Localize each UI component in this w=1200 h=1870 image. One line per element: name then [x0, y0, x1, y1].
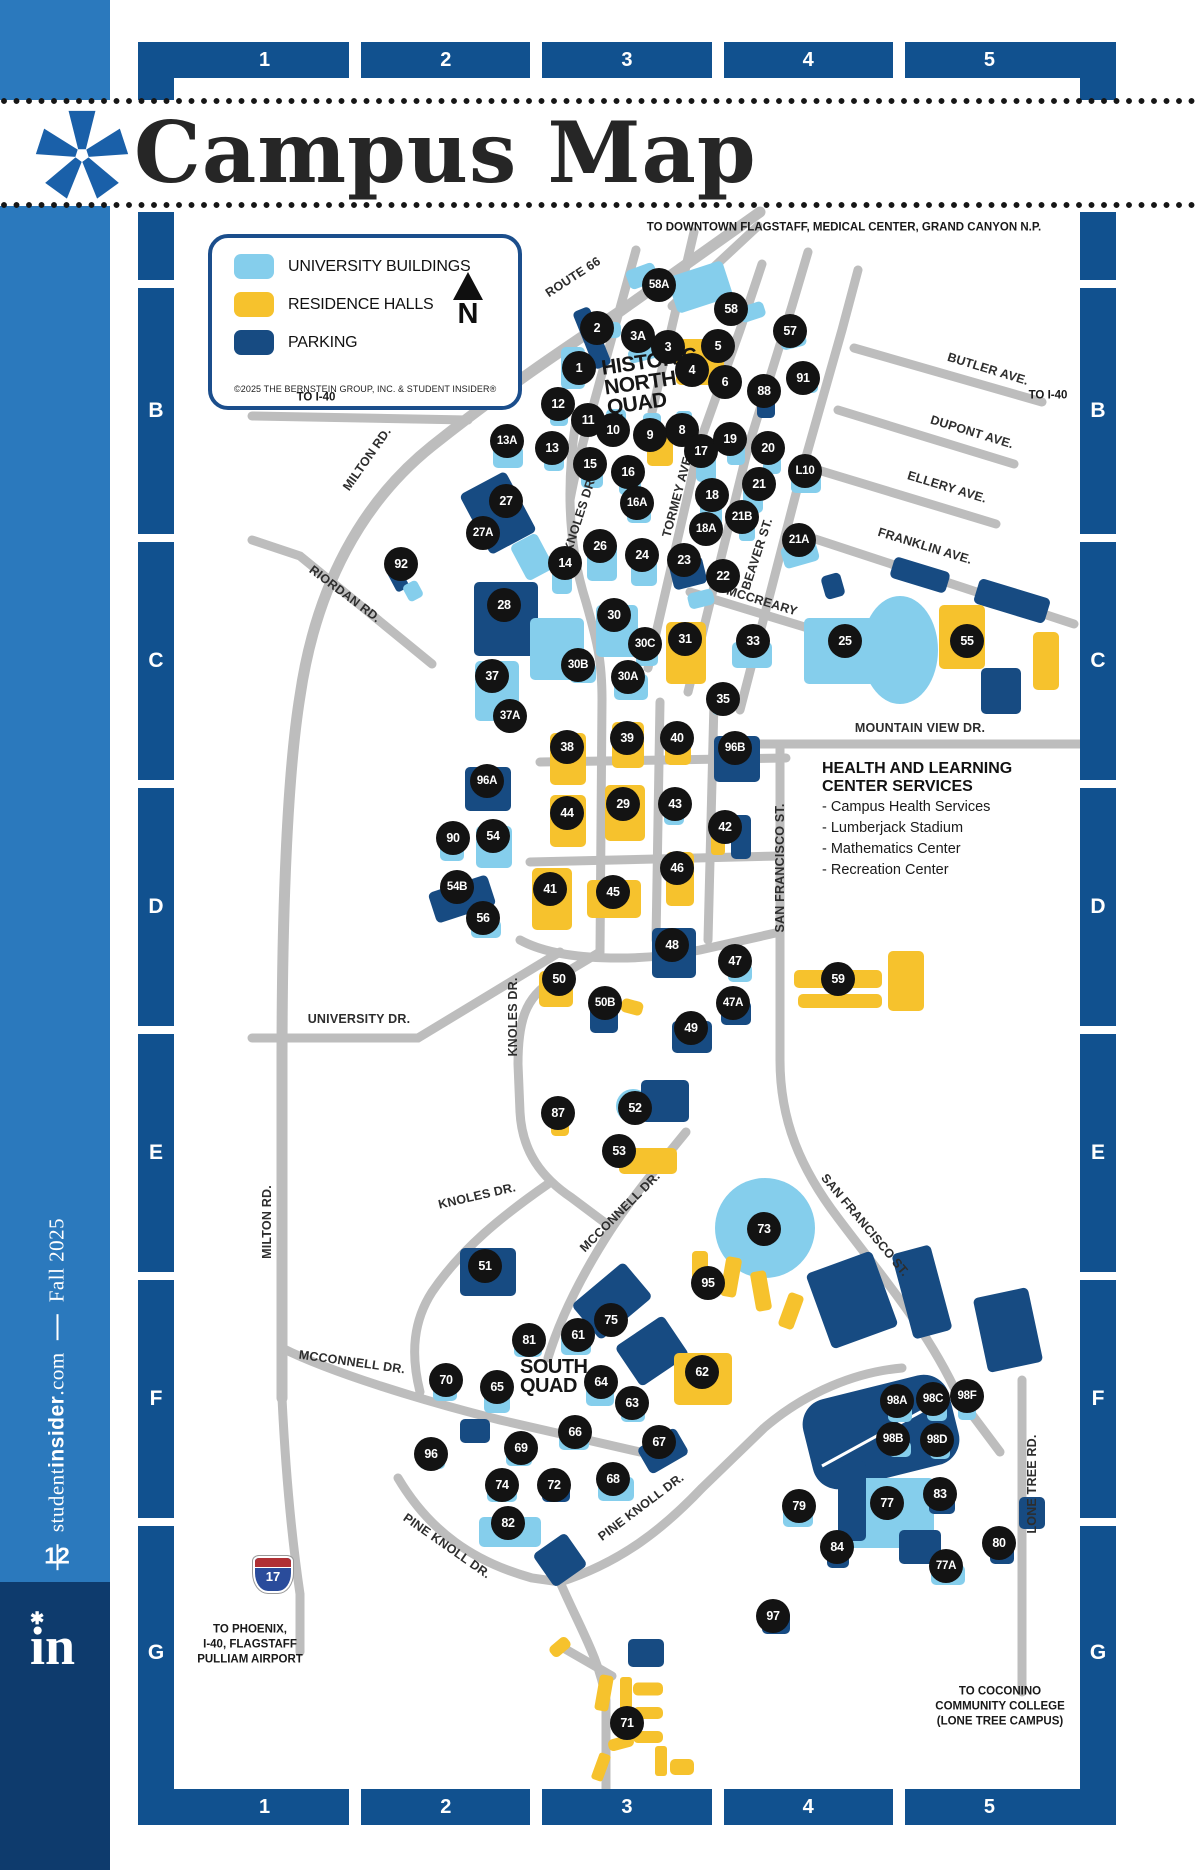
- map-marker-13: 13: [535, 431, 569, 465]
- street-label: SAN FRANCISCO ST.: [773, 803, 787, 932]
- map-marker-46: 46: [660, 851, 694, 885]
- map-marker-49: 49: [674, 1011, 708, 1045]
- grid-left-preseg: [138, 212, 174, 280]
- map-marker-50: 50: [542, 962, 576, 996]
- map-marker-15: 15: [573, 447, 607, 481]
- grid-row-label-right-G: G: [1080, 1526, 1116, 1780]
- asterisk-logo-icon: [34, 107, 130, 203]
- map-marker-74: 74: [485, 1468, 519, 1502]
- map-marker-70: 70: [429, 1363, 463, 1397]
- map-marker-69: 69: [504, 1431, 538, 1465]
- grid-row-label-left-F: F: [138, 1280, 174, 1518]
- map-marker-33: 33: [736, 624, 770, 658]
- services-item: - Recreation Center: [822, 860, 1012, 881]
- map-marker-21: 21: [742, 467, 776, 501]
- street-label: MOUNTAIN VIEW DR.: [855, 721, 985, 735]
- legend-item-label: UNIVERSITY BUILDINGS: [288, 258, 470, 276]
- map-marker-27: 27: [489, 484, 523, 518]
- map-marker-73: 73: [747, 1212, 781, 1246]
- map-marker-98C: 98C: [916, 1382, 950, 1416]
- map-marker-65: 65: [480, 1370, 514, 1404]
- map-marker-23: 23: [667, 543, 701, 577]
- grid-col-label-top-4: 4: [724, 42, 893, 78]
- map-marker-63: 63: [615, 1386, 649, 1420]
- map-marker-50B: 50B: [588, 986, 622, 1020]
- direction-note-line: TO I-40: [1029, 389, 1068, 404]
- map-marker-54: 54: [476, 819, 510, 853]
- building: [1033, 632, 1059, 690]
- building: [798, 994, 882, 1008]
- services-item: - Campus Health Services: [822, 797, 1012, 818]
- map-marker-30A: 30A: [611, 660, 645, 694]
- direction-note-line: (LONE TREE CAMPUS): [935, 1714, 1064, 1729]
- map-marker-5: 5: [701, 329, 735, 363]
- map-marker-41: 41: [533, 872, 567, 906]
- map-marker-29: 29: [606, 787, 640, 821]
- map-marker-47: 47: [718, 944, 752, 978]
- map-marker-81: 81: [512, 1323, 546, 1357]
- map-marker-25: 25: [828, 624, 862, 658]
- map-marker-14: 14: [548, 546, 582, 580]
- building: [981, 668, 1021, 714]
- legend-item-label: RESIDENCE HALLS: [288, 296, 434, 314]
- map-marker-97: 97: [756, 1599, 790, 1633]
- map-marker-90: 90: [436, 821, 470, 855]
- map-marker-2: 2: [580, 311, 614, 345]
- grid-row-label-right-E: E: [1080, 1034, 1116, 1272]
- direction-note-line: TO I-40: [297, 391, 336, 406]
- grid-row-label-left-E: E: [138, 1034, 174, 1272]
- map-marker-21B: 21B: [725, 500, 759, 534]
- grid-row-label-right-D: D: [1080, 788, 1116, 1026]
- legend-item-2: PARKING: [234, 330, 357, 355]
- legend-swatch-icon: [234, 292, 274, 317]
- map-marker-39: 39: [610, 721, 644, 755]
- map-marker-42: 42: [708, 810, 742, 844]
- map-marker-72: 72: [537, 1468, 571, 1502]
- map-marker-80: 80: [982, 1526, 1016, 1560]
- shield-number: 17: [255, 1569, 291, 1584]
- map-marker-58: 58: [714, 292, 748, 326]
- map-marker-84: 84: [820, 1530, 854, 1564]
- map-marker-92: 92: [384, 547, 418, 581]
- map-marker-98D: 98D: [920, 1423, 954, 1457]
- north-arrow-icon: [453, 272, 483, 300]
- grid-col-label-bottom-5: 5: [905, 1789, 1074, 1825]
- direction-note-2: TO I-40: [1029, 389, 1068, 404]
- map-marker-96B: 96B: [718, 731, 752, 765]
- map-graphics: [0, 0, 1200, 1870]
- map-marker-18A: 18A: [689, 512, 723, 546]
- grid-col-label-top-2: 2: [361, 42, 530, 78]
- map-marker-77A: 77A: [929, 1549, 963, 1583]
- map-marker-45: 45: [596, 875, 630, 909]
- direction-note-0: TO DOWNTOWN FLAGSTAFF, MEDICAL CENTER, G…: [647, 221, 1041, 236]
- brand-com: .com: [45, 1352, 69, 1395]
- quad-label-1: SOUTHQUAD: [520, 1358, 588, 1396]
- map-marker-11: 11: [571, 403, 605, 437]
- map-marker-77: 77: [870, 1486, 904, 1520]
- map-marker-62: 62: [685, 1355, 719, 1389]
- map-marker-9: 9: [633, 418, 667, 452]
- map-marker-37: 37: [475, 659, 509, 693]
- building: [805, 1250, 898, 1349]
- building: [633, 1683, 663, 1696]
- dotted-rule-bottom: [0, 201, 1200, 209]
- direction-note-line: TO PHOENIX,: [197, 1623, 303, 1638]
- map-marker-79: 79: [782, 1489, 816, 1523]
- campus-map-page: 1122334455BBCCDDEEFFGG Campus Map UNIVER…: [0, 0, 1200, 1870]
- map-marker-98B: 98B: [876, 1422, 910, 1456]
- grid-row-label-left-D: D: [138, 788, 174, 1026]
- shield-red-band: [255, 1558, 291, 1568]
- page-number: 12: [44, 1543, 70, 1570]
- grid-corner-bl-stub: [138, 1780, 174, 1825]
- interstate-17-shield-icon: 17: [253, 1556, 293, 1593]
- grid-corner-tl-stub: [138, 42, 174, 102]
- direction-note-line: COMMUNITY COLLEGE: [935, 1700, 1064, 1715]
- street-label: KNOLES DR.: [506, 977, 520, 1056]
- map-marker-30C: 30C: [628, 627, 662, 661]
- map-marker-16: 16: [611, 455, 645, 489]
- north-label: N: [448, 300, 488, 329]
- building: [620, 997, 645, 1016]
- north-arrow: N: [448, 272, 488, 329]
- direction-note-3: TO PHOENIX,I-40, FLAGSTAFFPULLIAM AIRPOR…: [197, 1623, 303, 1668]
- divider: [57, 1314, 59, 1340]
- street-label: LONE TREE RD.: [1025, 1434, 1039, 1533]
- legend-item-0: UNIVERSITY BUILDINGS: [234, 254, 470, 279]
- grid-col-label-bottom-1: 1: [180, 1789, 349, 1825]
- grid-corner-br-stub: [1080, 1780, 1116, 1825]
- direction-note-line: I-40, FLAGSTAFF: [197, 1638, 303, 1653]
- map-marker-98A: 98A: [880, 1384, 914, 1418]
- grid-row-label-left-C: C: [138, 542, 174, 780]
- building: [628, 1639, 664, 1667]
- map-marker-28: 28: [487, 588, 521, 622]
- map-marker-57: 57: [773, 314, 807, 348]
- map-marker-91: 91: [786, 361, 820, 395]
- issue-label: Fall 2025: [45, 1218, 69, 1302]
- map-marker-16A: 16A: [620, 486, 654, 520]
- map-marker-53: 53: [602, 1134, 636, 1168]
- brand-insider: insider: [46, 1396, 69, 1468]
- map-marker-30: 30: [597, 598, 631, 632]
- building: [670, 1759, 694, 1775]
- direction-note-1: TO I-40: [297, 391, 336, 406]
- map-marker-83: 83: [923, 1477, 957, 1511]
- building: [973, 1287, 1044, 1373]
- grid-row-label-left-G: G: [138, 1526, 174, 1780]
- map-marker-27A: 27A: [466, 516, 500, 550]
- building: [820, 572, 846, 601]
- building: [889, 556, 951, 594]
- map-marker-98F: 98F: [950, 1379, 984, 1413]
- grid-corner-tr-stub: [1080, 42, 1116, 102]
- brand-student: student: [45, 1468, 69, 1532]
- grid-col-label-top-1: 1: [180, 42, 349, 78]
- map-marker-4: 4: [675, 353, 709, 387]
- grid-row-label-right-B: B: [1080, 288, 1116, 534]
- services-item: - Lumberjack Stadium: [822, 818, 1012, 839]
- building: [655, 1746, 667, 1776]
- studentinsider-logo: ✱ in: [30, 1612, 75, 1670]
- map-marker-37A: 37A: [493, 699, 527, 733]
- map-marker-20: 20: [751, 431, 785, 465]
- map-marker-66: 66: [558, 1415, 592, 1449]
- map-marker-51: 51: [468, 1249, 502, 1283]
- building: [888, 951, 924, 1011]
- legend-swatch-icon: [234, 330, 274, 355]
- map-legend: UNIVERSITY BUILDINGSRESIDENCE HALLSPARKI…: [208, 234, 522, 410]
- sidebar-vertical-text: studentinsider.comFall 2025: [45, 1218, 70, 1582]
- map-marker-67: 67: [642, 1425, 676, 1459]
- map-marker-54B: 54B: [440, 870, 474, 904]
- street-label: MILTON RD.: [260, 1185, 274, 1259]
- grid-row-label-left-B: B: [138, 288, 174, 534]
- map-marker-59: 59: [821, 962, 855, 996]
- map-marker-68: 68: [596, 1462, 630, 1496]
- building: [777, 1291, 804, 1330]
- grid-col-label-bottom-3: 3: [542, 1789, 711, 1825]
- quad-label-line: QUAD: [520, 1377, 588, 1396]
- legend-copyright: ©2025 THE BERNSTEIN GROUP, INC. & STUDEN…: [234, 384, 496, 394]
- map-marker-47A: 47A: [716, 986, 750, 1020]
- map-marker-13A: 13A: [490, 424, 524, 458]
- map-marker-75: 75: [594, 1303, 628, 1337]
- map-marker-61: 61: [561, 1318, 595, 1352]
- street-label: UNIVERSITY DR.: [308, 1012, 411, 1026]
- legend-item-label: PARKING: [288, 334, 357, 352]
- grid-col-label-bottom-4: 4: [724, 1789, 893, 1825]
- map-marker-43: 43: [658, 787, 692, 821]
- map-marker-71: 71: [610, 1706, 644, 1740]
- map-marker-21A: 21A: [782, 523, 816, 557]
- building: [460, 1419, 490, 1443]
- map-marker-18: 18: [695, 478, 729, 512]
- map-marker-31: 31: [668, 622, 702, 656]
- map-marker-64: 64: [584, 1365, 618, 1399]
- map-marker-96A: 96A: [470, 764, 504, 798]
- map-marker-22: 22: [706, 559, 740, 593]
- map-marker-3A: 3A: [621, 319, 655, 353]
- map-marker-40: 40: [660, 721, 694, 755]
- grid-col-label-top-3: 3: [542, 42, 711, 78]
- map-marker-6: 6: [708, 365, 742, 399]
- map-marker-44: 44: [550, 796, 584, 830]
- logo-word: in: [30, 1616, 75, 1676]
- map-marker-26: 26: [583, 529, 617, 563]
- grid-col-label-bottom-2: 2: [361, 1789, 530, 1825]
- map-marker-87: 87: [541, 1096, 575, 1130]
- map-marker-95: 95: [691, 1266, 725, 1300]
- direction-note-line: TO DOWNTOWN FLAGSTAFF, MEDICAL CENTER, G…: [647, 221, 1041, 236]
- legend-swatch-icon: [234, 254, 274, 279]
- map-marker-48: 48: [655, 928, 689, 962]
- map-marker-24: 24: [625, 538, 659, 572]
- page-title: Campus Map: [134, 103, 757, 202]
- map-marker-55: 55: [950, 624, 984, 658]
- map-marker-19: 19: [713, 422, 747, 456]
- map-marker-52: 52: [618, 1091, 652, 1125]
- services-title-line: CENTER SERVICES: [822, 778, 1012, 796]
- map-marker-96: 96: [414, 1437, 448, 1471]
- map-marker-82: 82: [491, 1506, 525, 1540]
- services-title-line: HEALTH AND LEARNING: [822, 760, 1012, 778]
- grid-row-label-right-F: F: [1080, 1280, 1116, 1518]
- map-marker-12: 12: [541, 387, 575, 421]
- map-marker-35: 35: [706, 682, 740, 716]
- services-item: - Mathematics Center: [822, 839, 1012, 860]
- services-note: HEALTH AND LEARNINGCENTER SERVICES - Cam…: [822, 760, 1012, 881]
- map-marker-38: 38: [550, 730, 584, 764]
- grid-row-label-right-C: C: [1080, 542, 1116, 780]
- map-marker-56: 56: [466, 901, 500, 935]
- map-marker-L10: L10: [788, 454, 822, 488]
- direction-note-line: PULLIAM AIRPORT: [197, 1652, 303, 1667]
- direction-note-4: TO COCONINOCOMMUNITY COLLEGE(LONE TREE C…: [935, 1685, 1064, 1730]
- map-marker-88: 88: [747, 374, 781, 408]
- grid-col-label-top-5: 5: [905, 42, 1074, 78]
- legend-item-1: RESIDENCE HALLS: [234, 292, 434, 317]
- map-marker-1: 1: [562, 351, 596, 385]
- direction-note-line: TO COCONINO: [935, 1685, 1064, 1700]
- map-marker-30B: 30B: [561, 648, 595, 682]
- building: [838, 1461, 866, 1541]
- map-marker-58A: 58A: [642, 268, 676, 302]
- grid-right-preseg: [1080, 212, 1116, 280]
